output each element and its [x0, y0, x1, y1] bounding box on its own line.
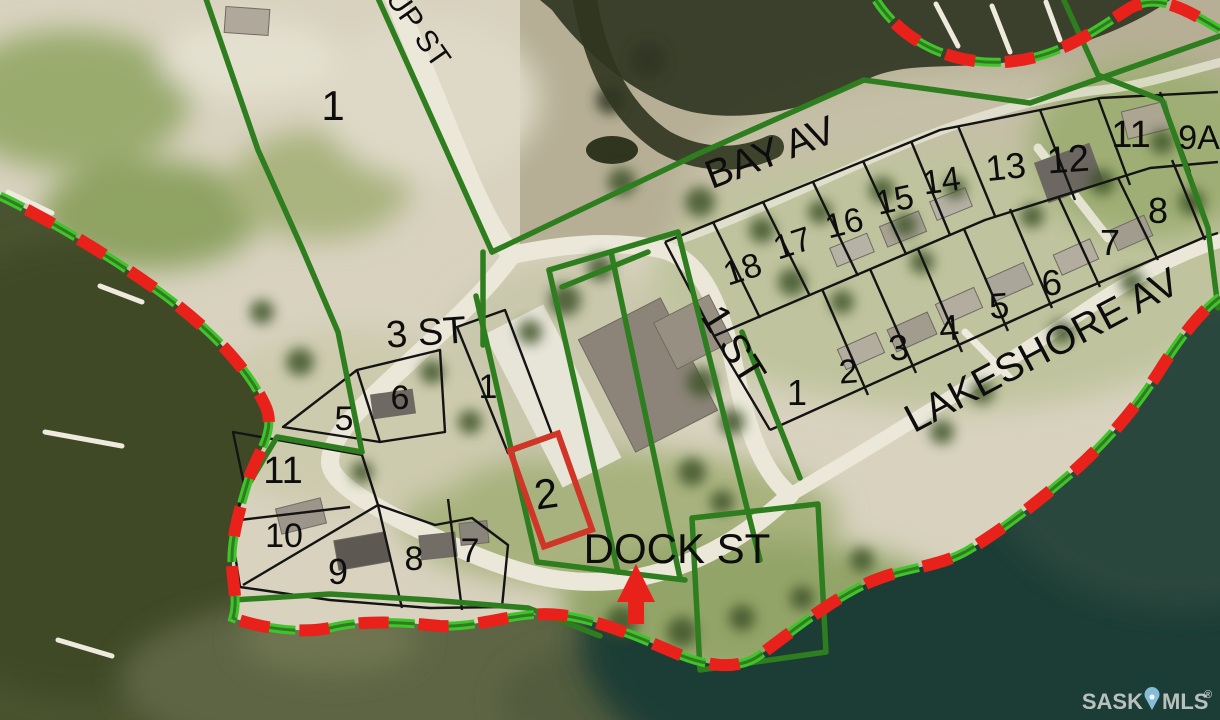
- lot-label-9-west: 9: [328, 551, 348, 592]
- lot-label-15: 15: [872, 178, 917, 223]
- lot-label-14: 14: [920, 160, 963, 203]
- lot-label-3-lakeshore: 3: [887, 326, 911, 369]
- lot-label-7-lakeshore: 7: [1100, 222, 1120, 263]
- watermark-registered-symbol: ®: [1204, 689, 1212, 701]
- parcel-map-image: UP ST BAY AV 3 ST 1 ST LAKESHORE AV DOCK…: [0, 0, 1220, 720]
- lot-label-8-lakeshore: 8: [1148, 190, 1168, 231]
- lot-label-5-west: 5: [335, 400, 354, 438]
- street-label-3-st: 3 ST: [385, 309, 468, 356]
- lot-label-11-bay: 11: [1111, 114, 1150, 156]
- watermark-sask-text: SASK: [1082, 689, 1143, 714]
- lot-label-1-lakeshore: 1: [787, 372, 807, 413]
- lot-label-11-west: 11: [263, 450, 302, 492]
- lot-label-4-lakeshore: 4: [938, 306, 961, 348]
- lot-label-6-lakeshore: 6: [1040, 261, 1064, 304]
- lot-label-5-lakeshore: 5: [988, 284, 1011, 326]
- lot-label-13: 13: [984, 144, 1028, 189]
- lot-label-1-west: 1: [479, 368, 498, 406]
- lot-label-10-west: 10: [265, 517, 303, 555]
- lot-label-8-west: 8: [405, 540, 424, 578]
- aerial-map-svg: UP ST BAY AV 3 ST 1 ST LAKESHORE AV DOCK…: [0, 0, 1220, 720]
- lot-label-7-west: 7: [461, 532, 480, 570]
- lot-label-farm-1: 1: [321, 82, 344, 129]
- lot-label-2-lakeshore: 2: [837, 352, 859, 391]
- lot-label-6-west: 6: [391, 379, 410, 417]
- watermark-mls-text: MLS: [1162, 689, 1208, 714]
- street-label-dock-st: DOCK ST: [584, 525, 771, 572]
- lot-label-12: 12: [1046, 138, 1091, 183]
- lot-label-9a: 9A: [1178, 119, 1220, 157]
